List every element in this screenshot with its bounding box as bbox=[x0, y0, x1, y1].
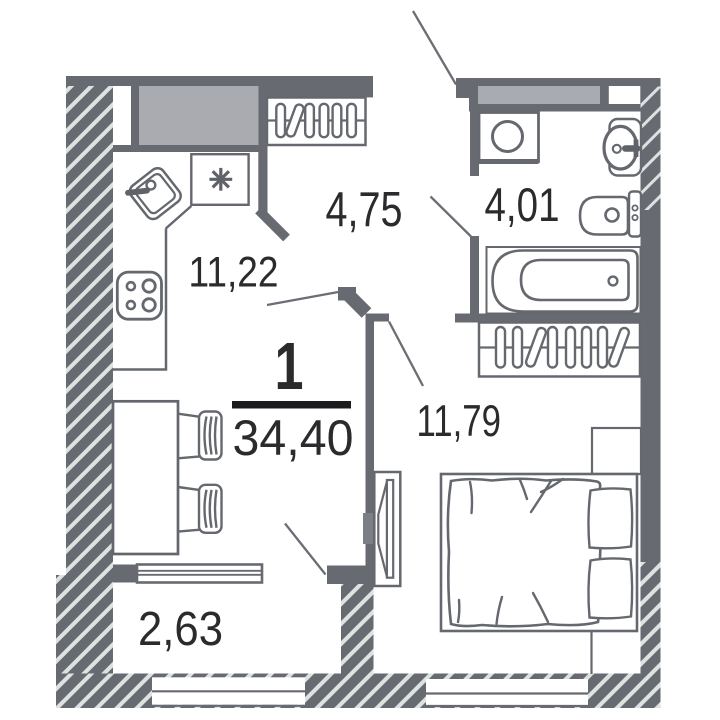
svg-text:4,75: 4,75 bbox=[326, 183, 403, 237]
svg-text:4,01: 4,01 bbox=[485, 179, 560, 232]
svg-text:11,22: 11,22 bbox=[189, 249, 279, 297]
svg-text:11,79: 11,79 bbox=[417, 397, 502, 446]
svg-text:2,63: 2,63 bbox=[138, 602, 223, 656]
svg-text:34,40: 34,40 bbox=[233, 410, 354, 466]
svg-text:1: 1 bbox=[275, 329, 304, 404]
